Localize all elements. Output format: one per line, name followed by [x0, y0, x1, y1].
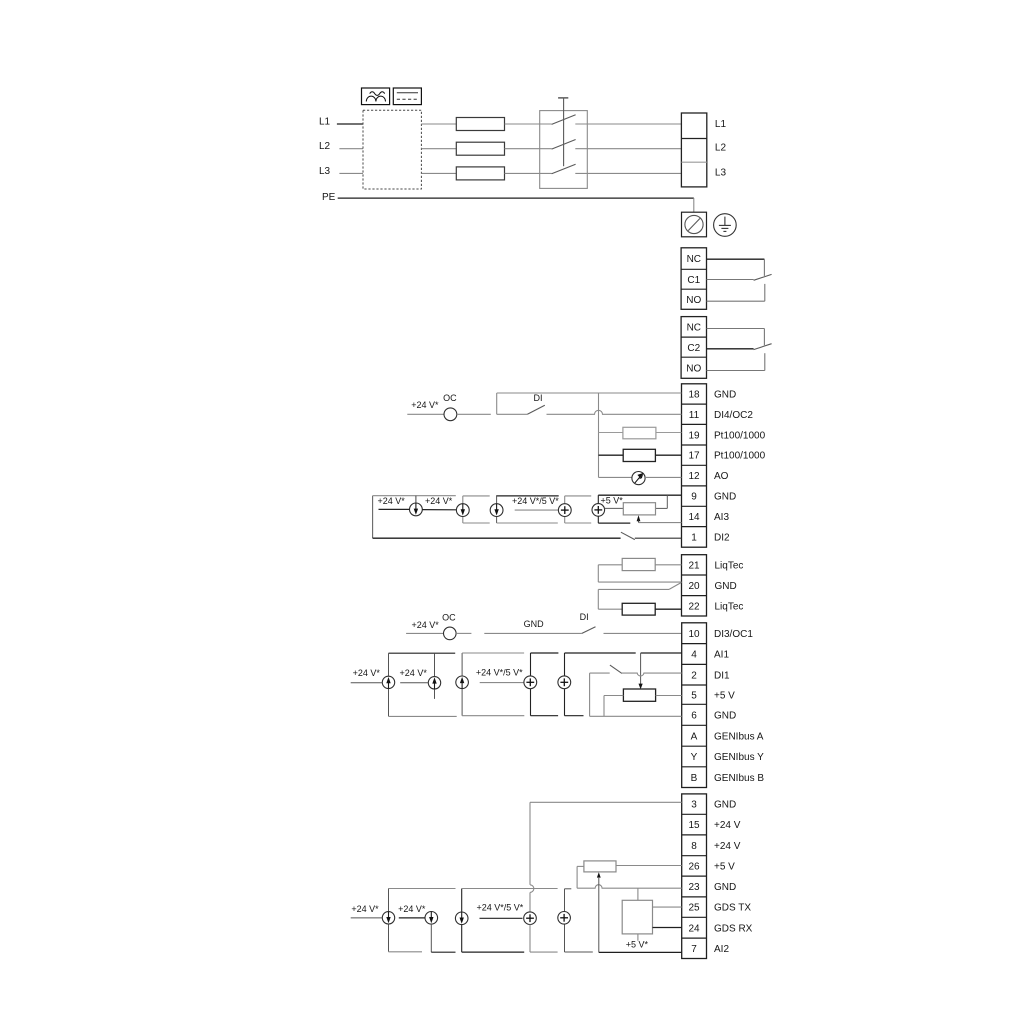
svg-text:26: 26: [688, 862, 700, 873]
svg-text:GENIbus B: GENIbus B: [714, 773, 764, 784]
svg-text:19: 19: [688, 430, 700, 441]
svg-text:L2: L2: [715, 143, 727, 154]
svg-text:Pt100/1000: Pt100/1000: [714, 451, 766, 462]
svg-text:10: 10: [688, 629, 700, 640]
svg-text:GND: GND: [714, 390, 736, 401]
svg-text:+24 V*/5 V*: +24 V*/5 V*: [512, 496, 559, 506]
svg-text:GND: GND: [714, 710, 736, 721]
svg-text:7: 7: [691, 944, 697, 955]
svg-text:GND: GND: [714, 492, 736, 503]
svg-text:15: 15: [688, 820, 700, 831]
svg-text:DI4/OC2: DI4/OC2: [714, 410, 753, 421]
svg-text:AI3: AI3: [714, 512, 729, 523]
svg-text:+5 V: +5 V: [714, 862, 735, 873]
svg-text:GDS RX: GDS RX: [714, 923, 753, 934]
svg-text:+24 V*: +24 V*: [411, 620, 439, 630]
svg-text:11: 11: [689, 410, 700, 421]
svg-text:21: 21: [688, 560, 700, 571]
svg-text:AI1: AI1: [714, 650, 729, 661]
svg-text:24: 24: [688, 923, 700, 934]
svg-text:C2: C2: [687, 343, 700, 354]
svg-text:LiqTec: LiqTec: [715, 601, 744, 612]
svg-text:+24 V: +24 V: [714, 820, 741, 831]
svg-text:PE: PE: [322, 192, 336, 203]
svg-text:+24 V*: +24 V*: [351, 904, 379, 914]
svg-text:+24 V*: +24 V*: [400, 668, 428, 678]
svg-text:AI2: AI2: [714, 944, 729, 955]
svg-text:22: 22: [688, 601, 700, 612]
svg-text:3: 3: [691, 800, 697, 811]
svg-text:GND: GND: [714, 882, 736, 893]
svg-text:L1: L1: [715, 119, 727, 130]
svg-text:AO: AO: [714, 471, 729, 482]
svg-text:L2: L2: [319, 141, 331, 152]
svg-text:DI2: DI2: [714, 533, 730, 544]
svg-text:23: 23: [688, 882, 700, 893]
svg-text:+5 V*: +5 V*: [600, 495, 623, 505]
svg-text:8: 8: [691, 841, 697, 852]
svg-text:GENIbus A: GENIbus A: [714, 731, 764, 742]
svg-text:12: 12: [688, 471, 700, 482]
svg-text:14: 14: [688, 512, 700, 523]
svg-text:6: 6: [691, 710, 697, 721]
svg-text:+24 V*: +24 V*: [377, 496, 405, 506]
svg-text:DI: DI: [580, 612, 589, 622]
svg-text:L3: L3: [715, 167, 727, 178]
svg-text:L1: L1: [319, 117, 331, 128]
svg-text:25: 25: [688, 903, 700, 914]
svg-text:+24 V: +24 V: [714, 841, 741, 852]
svg-text:Y: Y: [691, 752, 698, 763]
svg-text:17: 17: [688, 451, 700, 462]
svg-text:DI1: DI1: [714, 670, 730, 681]
svg-text:NC: NC: [687, 323, 701, 334]
svg-text:GND: GND: [524, 619, 545, 629]
svg-text:+5 V: +5 V: [714, 690, 735, 701]
svg-text:GDS TX: GDS TX: [714, 903, 751, 914]
svg-text:C1: C1: [687, 275, 700, 286]
svg-text:OC: OC: [442, 613, 456, 623]
svg-text:DI3/OC1: DI3/OC1: [714, 629, 753, 640]
svg-text:+24 V*/5 V*: +24 V*/5 V*: [477, 903, 524, 913]
svg-text:DI: DI: [534, 393, 543, 403]
svg-text:+24 V*: +24 V*: [353, 668, 381, 678]
svg-text:LiqTec: LiqTec: [715, 560, 744, 571]
svg-text:1: 1: [691, 533, 697, 544]
svg-text:+5 V*: +5 V*: [626, 939, 649, 949]
svg-text:NO: NO: [686, 363, 701, 374]
svg-text:+24 V*: +24 V*: [411, 400, 439, 410]
svg-text:GND: GND: [714, 800, 736, 811]
svg-text:5: 5: [691, 690, 697, 701]
svg-text:B: B: [691, 773, 698, 784]
svg-text:9: 9: [691, 492, 697, 503]
svg-text:NO: NO: [686, 295, 701, 306]
svg-text:OC: OC: [443, 393, 457, 403]
svg-text:+24 V*: +24 V*: [425, 496, 453, 506]
svg-text:18: 18: [688, 390, 700, 401]
svg-text:A: A: [691, 731, 698, 742]
svg-text:+24 V*: +24 V*: [398, 904, 426, 914]
svg-text:GENIbus Y: GENIbus Y: [714, 752, 764, 763]
svg-text:L3: L3: [319, 166, 331, 177]
svg-text:20: 20: [688, 581, 700, 592]
svg-text:2: 2: [691, 670, 697, 681]
svg-text:4: 4: [691, 650, 697, 661]
svg-text:GND: GND: [715, 581, 737, 592]
svg-text:NC: NC: [687, 254, 701, 265]
svg-text:Pt100/1000: Pt100/1000: [714, 430, 766, 441]
svg-text:+24 V*/5 V*: +24 V*/5 V*: [476, 667, 523, 677]
